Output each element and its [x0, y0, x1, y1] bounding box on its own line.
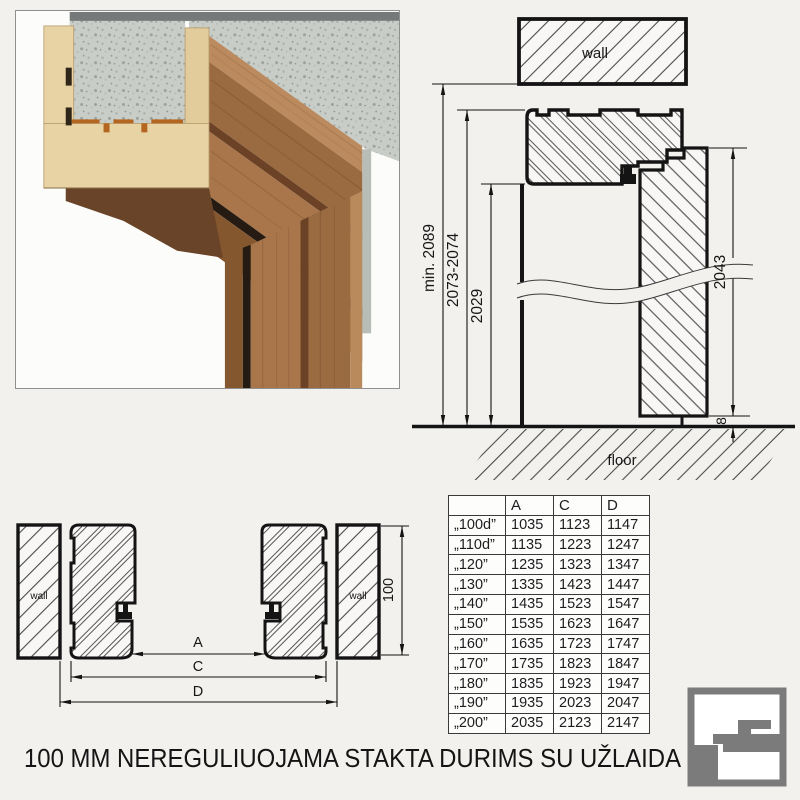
table-row: „190” 1935 2023 2047 [449, 693, 650, 713]
dim-total-height-label: min. 2089 [421, 224, 438, 292]
cell-a: 1235 [506, 555, 554, 575]
wall-block-left: wall [18, 525, 60, 658]
dim-floor-gap-label: 8 [713, 417, 729, 425]
table-row: „180” 1835 1923 1947 [449, 674, 650, 694]
cell-d: 1347 [602, 555, 650, 575]
wall-label: wall [581, 45, 608, 62]
brand-logo [687, 687, 787, 787]
cell-d: 1747 [602, 634, 650, 654]
cell-a: 1935 [506, 693, 554, 713]
cell-size: „160” [449, 634, 506, 654]
frame-jamb-left [71, 525, 135, 658]
cell-a: 2035 [506, 713, 554, 733]
header-size [449, 496, 506, 516]
caption: 100 MM NEREGULIUOJAMA STAKTA DURIMS SU U… [24, 743, 681, 774]
table-row: „140” 1435 1523 1547 [449, 594, 650, 614]
cell-d: 2147 [602, 713, 650, 733]
cell-c: 1623 [554, 614, 602, 634]
horizontal-section-drawing: wall wall [5, 505, 435, 730]
cell-a: 1035 [506, 515, 554, 535]
cell-c: 1723 [554, 634, 602, 654]
table-row: „150” 1535 1623 1647 [449, 614, 650, 634]
cell-c: 1923 [554, 674, 602, 694]
dim-c-label: C [193, 659, 203, 675]
cell-size: „120” [449, 555, 506, 575]
cell-c: 2023 [554, 693, 602, 713]
cell-d: 1247 [602, 535, 650, 555]
cell-size: „140” [449, 594, 506, 614]
dim-frame-height-label: 2073-2074 [445, 233, 462, 308]
page: wall floor [0, 0, 800, 800]
table-header-row: A C D [449, 496, 650, 516]
table-row: „160” 1635 1723 1747 [449, 634, 650, 654]
cell-d: 2047 [602, 693, 650, 713]
jamb-seal-groove [243, 245, 251, 388]
cell-size: „150” [449, 614, 506, 634]
cell-d: 1147 [602, 515, 650, 535]
table-row: „120” 1235 1323 1347 [449, 555, 650, 575]
cell-size: „180” [449, 674, 506, 694]
cell-c: 1223 [554, 535, 602, 555]
table-row: „110d” 1135 1223 1247 [449, 535, 650, 555]
jamb-left-seal [118, 603, 132, 619]
wall-block-right: wall [337, 525, 379, 658]
table-row: „170” 1735 1823 1847 [449, 654, 650, 674]
dim-a-label: A [193, 635, 203, 651]
jamb-right-seal [265, 603, 279, 619]
frame-corner-3d-illustration [16, 11, 399, 388]
vertical-section-drawing: wall floor [405, 8, 800, 496]
header-c: C [554, 496, 602, 516]
table-row: „100d” 1035 1123 1147 [449, 515, 650, 535]
cell-c: 1423 [554, 575, 602, 595]
dim-opening-height-label: 2029 [469, 289, 486, 323]
cell-a: 1435 [506, 594, 554, 614]
cell-d: 1647 [602, 614, 650, 634]
cell-size: „170” [449, 654, 506, 674]
cell-c: 1823 [554, 654, 602, 674]
frame-corner-3d-render [15, 10, 400, 389]
cell-size: „200” [449, 713, 506, 733]
cell-c: 2123 [554, 713, 602, 733]
floor: floor [412, 427, 795, 481]
dim-depth-label: 100 [381, 578, 397, 602]
cell-size: „110d” [449, 535, 506, 555]
cell-d: 1447 [602, 575, 650, 595]
cell-a: 1335 [506, 575, 554, 595]
frame-profile-logo-icon [691, 691, 783, 783]
table-row: „200” 2035 2123 2147 [449, 713, 650, 733]
cell-c: 1123 [554, 515, 602, 535]
cell-a: 1835 [506, 674, 554, 694]
cell-d: 1847 [602, 654, 650, 674]
wall-left-label: wall [29, 591, 47, 602]
cell-a: 1135 [506, 535, 554, 555]
cell-size: „100d” [449, 515, 506, 535]
cell-a: 1635 [506, 634, 554, 654]
dim-leaf-height-label: 2043 [712, 255, 729, 289]
wall-right-label: wall [348, 591, 366, 602]
header-d: D [602, 496, 650, 516]
cell-c: 1323 [554, 555, 602, 575]
cell-d: 1547 [602, 594, 650, 614]
wall-block: wall [519, 19, 686, 84]
cell-c: 1523 [554, 594, 602, 614]
frame-jamb-right [262, 525, 326, 658]
cell-a: 1735 [506, 654, 554, 674]
cell-a: 1535 [506, 614, 554, 634]
table-row: „130” 1335 1423 1447 [449, 575, 650, 595]
cell-size: „130” [449, 575, 506, 595]
header-a: A [506, 496, 554, 516]
dim-d-label: D [193, 684, 203, 700]
cell-d: 1947 [602, 674, 650, 694]
floor-label: floor [607, 452, 636, 469]
cell-size: „190” [449, 693, 506, 713]
dimensions-table: A C D „100d” 1035 1123 1147 „110d” 1135 … [448, 495, 650, 734]
